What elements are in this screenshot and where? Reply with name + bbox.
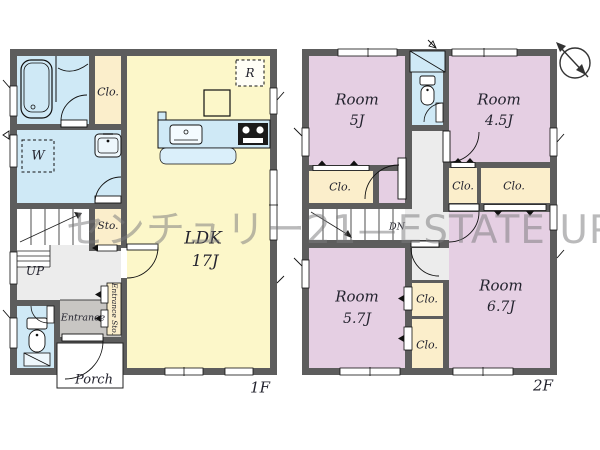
refrigerator-label: R: [245, 67, 254, 79]
washer-label: W: [31, 150, 44, 163]
room-5-7j-size: 5.7J: [343, 312, 371, 326]
entrance-storage-label: Entrance Sto.: [110, 283, 118, 335]
bath-door-leaf: [61, 120, 87, 127]
room4-5j-door-leaf: [443, 131, 450, 162]
kitchen-sink-icon: [170, 125, 202, 144]
toilet-icon: [420, 76, 435, 105]
f2-room-4-5j: [449, 56, 550, 162]
room-4-5j-size: 4.5J: [485, 114, 513, 128]
entrance-storage-door: [101, 286, 108, 303]
f2-closet-label: Clo.: [416, 340, 438, 351]
f2-room-5j: [309, 56, 405, 165]
ldk-size-label: 17J: [192, 253, 219, 269]
porch-label: Porch: [75, 374, 113, 387]
f2-closet-label: Clo.: [503, 181, 525, 192]
f2-room-5-7j: [309, 248, 405, 368]
front-door-leaf: [62, 334, 103, 341]
toilet-door-leaf: [47, 306, 54, 323]
f2-closet-label: Clo.: [452, 181, 474, 192]
entrance-label: Entrance: [61, 313, 105, 323]
room-4-5j-name: Room: [477, 93, 521, 108]
f2-closet-label: Clo.: [416, 294, 438, 305]
toilet2-door-leaf: [436, 103, 443, 122]
north-compass-icon: [556, 42, 590, 78]
room5j-door-leaf: [398, 158, 406, 199]
watermark-text: センチュリー21—ESTATE UP: [66, 199, 600, 255]
floor1-label: 1F: [250, 381, 270, 396]
room-5-7j-name: Room: [335, 290, 379, 305]
room-6-7j-size: 6.7J: [487, 300, 515, 314]
stove-icon: [238, 123, 268, 145]
f1-closet-label: Clo.: [97, 87, 119, 98]
room-5j-size: 5J: [350, 114, 365, 128]
room-5j-name: Room: [335, 93, 379, 108]
stairs-up-label: UP: [26, 265, 44, 277]
room-6-7j-name: Room: [479, 279, 523, 294]
f2-closet-label: Clo.: [329, 182, 351, 193]
floorplan: Clo. R W LDK 17J Sto. UP Entrance Entran…: [0, 0, 600, 450]
floor2-label: 2F: [533, 379, 553, 394]
f1-bathroom: [17, 56, 89, 124]
washbasin-icon: [95, 134, 121, 157]
